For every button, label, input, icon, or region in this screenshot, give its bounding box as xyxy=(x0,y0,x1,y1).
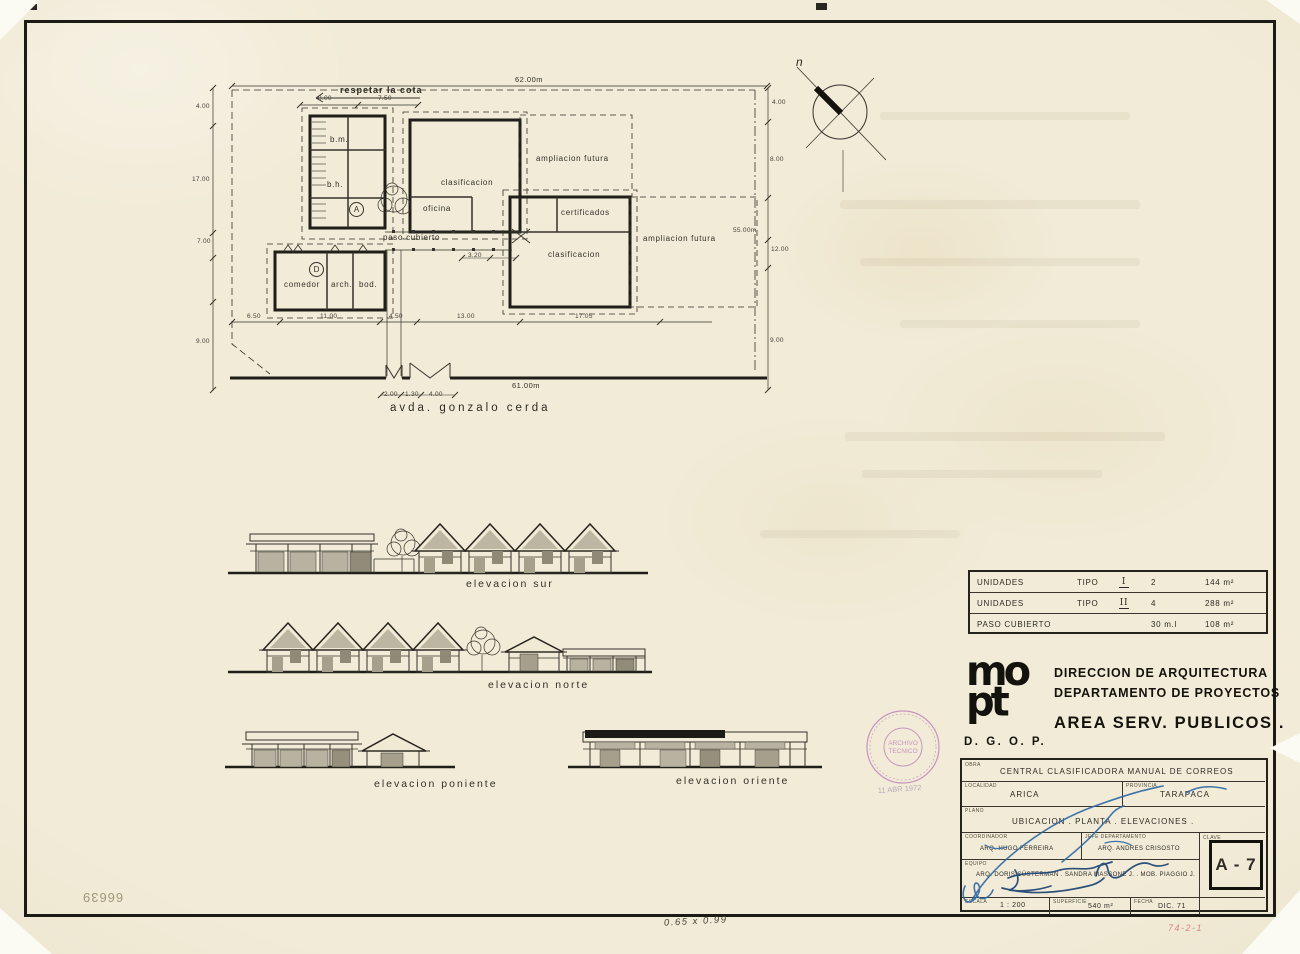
titleblock-divider xyxy=(962,897,1265,898)
stamp-line2: TECNICO xyxy=(888,748,917,755)
titleblock-divider xyxy=(962,832,1265,833)
escala-label: ESCALA xyxy=(965,899,987,905)
agency-line3: AREA SERV. PUBLICOS . xyxy=(1054,714,1285,733)
localidad-value: ARICA xyxy=(1010,790,1039,799)
superficie-label: SUPERFICIE xyxy=(1053,899,1087,905)
units-summary-table: UNIDADES TIPO I 2 144 m² UNIDADES TIPO I… xyxy=(968,570,1268,634)
units-cell-qty: 2 xyxy=(1151,578,1205,587)
titleblock-divider xyxy=(1122,781,1123,806)
provincia-label: PROVINCIA xyxy=(1126,783,1157,789)
fecha-value: DIC. 71 xyxy=(1158,903,1186,910)
units-row: PASO CUBIERTO 30 m.l 108 m² xyxy=(970,614,1266,634)
elevation-poniente xyxy=(225,732,455,767)
localidad-label: LOCALIDAD xyxy=(965,783,997,789)
dgop-label: D. G. O. P. xyxy=(964,736,1046,748)
stamp-line1: ARCHIVO xyxy=(888,740,918,747)
north-compass xyxy=(797,67,886,192)
clave-box: A - 7 xyxy=(1209,840,1263,890)
titleblock-divider xyxy=(962,806,1265,807)
units-cell-roman: I xyxy=(1119,577,1129,588)
plano-label: PLANO xyxy=(965,808,984,814)
units-cell-area: 108 m² xyxy=(1205,620,1263,629)
units-cell-label: UNIDADES xyxy=(977,599,1077,608)
fecha-label: FECHA xyxy=(1134,899,1153,905)
coordinador-label: COORDINADOR xyxy=(965,834,1007,840)
floor-plan xyxy=(210,83,771,398)
red-file-code: 74-2-1 xyxy=(1168,923,1203,933)
units-cell-area: 288 m² xyxy=(1205,599,1263,608)
superficie-value: 540 m² xyxy=(1088,903,1113,910)
clave-value: A - 7 xyxy=(1215,855,1256,875)
archive-stamp: ARCHIVO TECNICO 11 ABR 1972 xyxy=(867,711,939,795)
titleblock-divider xyxy=(962,859,1199,860)
jefe-label: JEFE DEPARTAMENTO xyxy=(1085,834,1146,840)
titleblock-divider xyxy=(1130,897,1131,914)
units-cell-roman: II xyxy=(1119,598,1129,609)
units-row: UNIDADES TIPO I 2 144 m² xyxy=(970,572,1266,593)
units-row: UNIDADES TIPO II 4 288 m² xyxy=(970,593,1266,614)
units-cell-label: PASO CUBIERTO xyxy=(977,620,1077,629)
mopt-logo: mo pt xyxy=(966,657,1048,717)
obra-label: OBRA xyxy=(965,762,981,768)
title-block: OBRA CENTRAL CLASIFICADORA MANUAL DE COR… xyxy=(960,758,1268,912)
stamp-date: 11 ABR 1972 xyxy=(878,783,922,795)
titleblock-divider xyxy=(1081,832,1082,859)
titleblock-divider xyxy=(962,781,1265,782)
compass-needle xyxy=(816,88,841,113)
agency-line1: DIRECCION DE ARQUITECTURA xyxy=(1054,666,1268,680)
elevation-oriente xyxy=(568,730,822,767)
units-cell-area: 144 m² xyxy=(1205,578,1263,587)
escala-value: 1 : 200 xyxy=(1000,902,1026,909)
pencil-inventory-number: 66639 xyxy=(82,890,123,905)
agency-line2: DEPARTAMENTO DE PROYECTOS xyxy=(1054,686,1280,700)
coordinador-value: ARQ. HUGO FERREIRA xyxy=(980,846,1054,852)
drawing-sheet: ARCHIVO TECNICO 11 ABR 1972 respetar la … xyxy=(0,0,1300,954)
units-cell-tipo: TIPO xyxy=(1077,578,1119,587)
units-cell-qty: 4 xyxy=(1151,599,1205,608)
obra-value: CENTRAL CLASIFICADORA MANUAL DE CORREOS xyxy=(1000,767,1234,776)
titleblock-divider xyxy=(1049,897,1050,914)
agency-block: mo pt D. G. O. P. DIRECCION DE ARQUITECT… xyxy=(962,652,1268,754)
scan-mark xyxy=(816,3,827,10)
plano-value: UBICACION . PLANTA . ELEVACIONES . xyxy=(1012,817,1194,826)
elevation-sur xyxy=(228,524,648,573)
units-cell-label: UNIDADES xyxy=(977,578,1077,587)
jefe-value: ARQ. ANDRES CRISOSTO xyxy=(1098,846,1180,852)
equipo-value: ARQ. DORIS SÜSTERMAN . SANDRA MASSONE J.… xyxy=(976,872,1195,878)
equipo-label: EQUIPO xyxy=(965,861,987,867)
elevation-norte xyxy=(228,623,652,672)
titleblock-divider xyxy=(1199,832,1200,914)
provincia-value: TARAPACA xyxy=(1160,790,1210,799)
units-cell-tipo: TIPO xyxy=(1077,599,1119,608)
units-cell-qty: 30 m.l xyxy=(1151,620,1205,629)
north-label: n xyxy=(796,55,803,69)
